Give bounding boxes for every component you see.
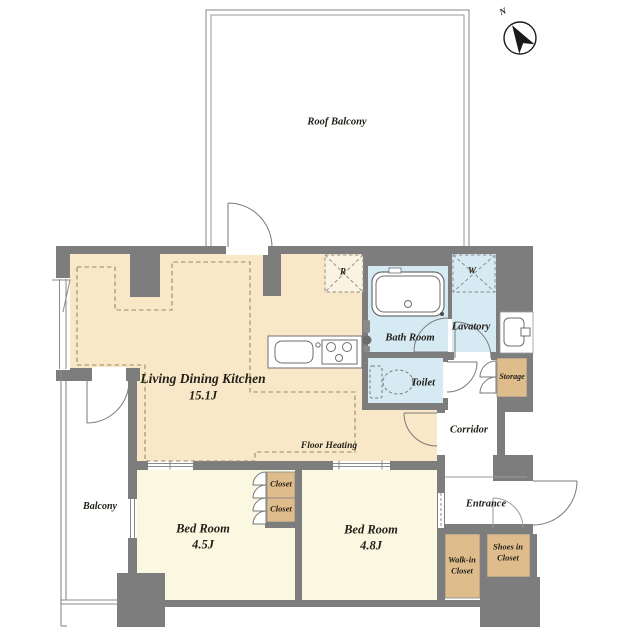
opening-bedroom-window xyxy=(128,499,137,538)
wall-stub-ldk-1 xyxy=(130,254,160,297)
toilet-label: Toilet xyxy=(411,377,435,388)
wall-bedroom-west xyxy=(128,381,137,600)
wall-stub-ldk-2 xyxy=(263,254,281,296)
wall-closet-bottom xyxy=(265,522,297,528)
storage-bifold-petal xyxy=(480,377,496,393)
opening-balcony-door xyxy=(92,367,126,382)
wall-bedroom-divider xyxy=(295,470,302,600)
corridor-label: Corridor xyxy=(450,424,488,435)
bedroom-large-label: Bed Room xyxy=(344,523,398,536)
wall-top xyxy=(56,246,533,254)
wall-bedroom-large-east xyxy=(437,470,445,600)
panel-handle-icon xyxy=(521,328,530,336)
ldk-label: Living Dining Kitchen xyxy=(140,372,265,386)
shower-bracket xyxy=(363,320,370,333)
refrigerator-mark: R xyxy=(340,267,346,276)
opening-slide-ldk-bedroom-large xyxy=(333,461,390,470)
kitchen xyxy=(268,336,362,368)
opening-lavatory-door xyxy=(454,352,491,360)
wall-walkin-shoes-divider xyxy=(480,534,487,598)
closet-upper-label: Closet xyxy=(270,480,292,489)
storage-bifold-petal xyxy=(480,361,496,377)
floor-plan-drawing xyxy=(0,0,632,640)
shower-tap xyxy=(363,346,370,352)
kitchen-sink xyxy=(275,341,313,363)
wall-above-alcove xyxy=(497,397,533,412)
opening-toilet-door xyxy=(443,362,448,398)
lavatory-label: Lavatory xyxy=(452,321,491,332)
wall-shoes-east xyxy=(530,534,537,577)
shower-head xyxy=(363,336,372,345)
wall-pillar-sw xyxy=(117,573,165,627)
entrance-label: Entrance xyxy=(466,498,506,509)
storage-label: Storage xyxy=(499,373,524,381)
closet-lower-label: Closet xyxy=(270,505,292,514)
bathtub-handle xyxy=(389,268,401,273)
bathtub xyxy=(372,268,444,316)
bedroom-small-label: Bed Room xyxy=(176,522,230,535)
wall-block-se xyxy=(480,577,540,627)
ldk-size-label: 15.1J xyxy=(189,389,217,402)
wall-right-upper-chunk xyxy=(496,252,533,312)
balcony-door xyxy=(87,381,129,423)
wall-toilet-bottom xyxy=(362,403,448,410)
roof-balcony-label: Roof Balcony xyxy=(307,116,366,127)
bath-label: Bath Room xyxy=(385,332,434,343)
bedroom-large-size: 4.8J xyxy=(360,539,382,552)
opening-roof-balcony-door xyxy=(226,245,268,255)
bathtub-faucet-dot xyxy=(440,312,444,316)
walk-in-closet-label-1: Walk-in xyxy=(448,556,476,565)
balcony-label: Balcony xyxy=(83,502,117,513)
opening-ldk-door xyxy=(437,413,445,455)
roof-balcony-outline xyxy=(206,10,469,250)
balcony-railing xyxy=(61,371,119,626)
wall-left-upper xyxy=(56,254,70,280)
wall-bath-top xyxy=(368,254,452,266)
bedroom-small-size: 4.5J xyxy=(192,538,214,551)
floor-plan: Roof Balcony N R W Bath Room Lavatory To… xyxy=(0,0,632,640)
wall-entrance-closets xyxy=(440,524,533,534)
wall-nook-left xyxy=(496,312,500,358)
bathtub-outer xyxy=(372,272,444,316)
washer-mark: W xyxy=(468,266,476,275)
walk-in-closet-label-2: Closet xyxy=(451,567,473,576)
wall-bath-toilet xyxy=(362,352,448,358)
toilet-door xyxy=(447,362,477,392)
floor-heating-label: Floor Heating xyxy=(301,442,357,452)
entrance-door xyxy=(533,481,577,525)
wall-alcove-left xyxy=(497,412,505,455)
kitchen-stove xyxy=(322,340,357,364)
wall-bottom xyxy=(165,600,502,607)
shoes-closet-label-1: Shoes in xyxy=(493,543,523,552)
meter-nook xyxy=(500,312,533,353)
wall-nook-bottom xyxy=(496,353,533,358)
compass xyxy=(504,21,536,54)
opening-entrance-door xyxy=(527,481,533,524)
shoes-closet-label-2: Closet xyxy=(497,554,519,563)
